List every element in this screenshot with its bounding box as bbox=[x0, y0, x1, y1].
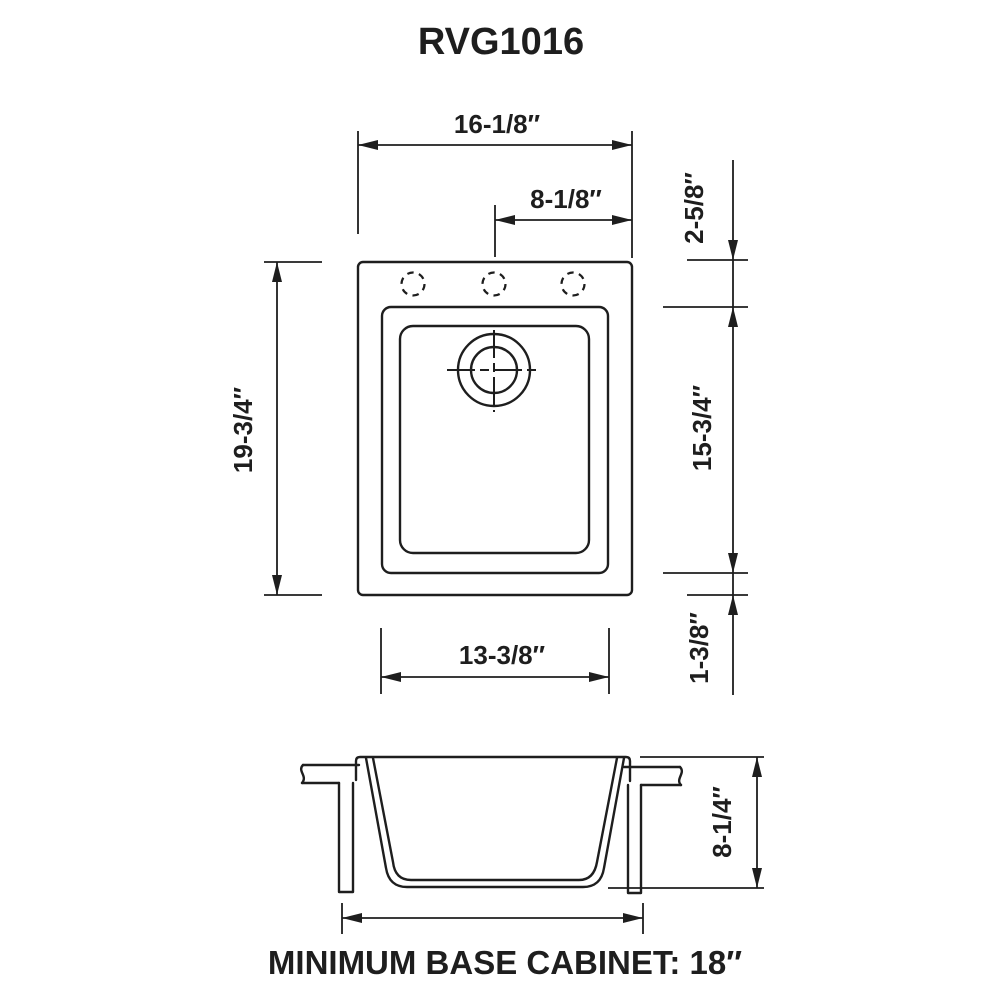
dim-center-to-edge-label: 8-1/8″ bbox=[530, 184, 602, 214]
arrow-right-icon bbox=[612, 215, 632, 225]
top-view bbox=[358, 262, 632, 595]
drawing-svg: RVG1016 16-1/8″ 8-1/8″ bbox=[0, 0, 1000, 1000]
countertop-right bbox=[624, 767, 682, 785]
bowl-wall-outer bbox=[366, 758, 624, 887]
bowl-inner-edge bbox=[400, 326, 589, 553]
bowl-wall-inner bbox=[373, 758, 617, 880]
arrow-down-icon bbox=[728, 240, 738, 260]
arrow-right-icon bbox=[623, 913, 643, 923]
dim-overall-width-label: 16-1/8″ bbox=[454, 109, 540, 139]
arrow-right-icon bbox=[612, 140, 632, 150]
dim-center-to-edge: 8-1/8″ bbox=[495, 184, 632, 257]
arrow-down-icon bbox=[728, 553, 738, 573]
dim-sink-depth: 8-1/4″ bbox=[608, 757, 764, 888]
sink-rim-profile bbox=[356, 757, 630, 781]
arrow-down-icon bbox=[752, 868, 762, 888]
faucet-hole-right-icon bbox=[562, 273, 585, 296]
dim-base-cabinet bbox=[342, 903, 643, 934]
cabinet-wall-right bbox=[628, 785, 641, 893]
dim-right-stack: 2-5/8″ 15-3/4″ 1-3/8″ bbox=[663, 160, 748, 695]
side-view bbox=[301, 757, 682, 893]
faucet-hole-center-icon bbox=[483, 273, 506, 296]
arrow-up-icon bbox=[272, 262, 282, 282]
base-cabinet-note: MINIMUM BASE CABINET: 18″ bbox=[268, 944, 742, 981]
arrow-left-icon bbox=[358, 140, 378, 150]
arrow-up-icon bbox=[728, 307, 738, 327]
dim-bowl-width-label: 13-3/8″ bbox=[459, 640, 545, 670]
dim-overall-depth-label: 19-3/4″ bbox=[228, 387, 258, 473]
dim-bowl-length-label: 15-3/4″ bbox=[687, 385, 717, 471]
break-line bbox=[679, 767, 682, 785]
dim-bowl-to-rim-label: 1-3/8″ bbox=[684, 612, 714, 684]
cabinet-wall-left bbox=[339, 783, 353, 892]
arrow-left-icon bbox=[342, 913, 362, 923]
drain bbox=[447, 330, 541, 412]
arrow-left-icon bbox=[381, 672, 401, 682]
arrow-right-icon bbox=[589, 672, 609, 682]
break-line bbox=[301, 765, 304, 783]
faucet-hole-left-icon bbox=[402, 273, 425, 296]
dim-bowl-width: 13-3/8″ bbox=[381, 628, 609, 694]
arrow-up-icon bbox=[728, 595, 738, 615]
arrow-up-icon bbox=[752, 757, 762, 777]
arrow-down-icon bbox=[272, 575, 282, 595]
arrow-left-icon bbox=[495, 215, 515, 225]
model-title: RVG1016 bbox=[418, 21, 584, 63]
countertop-left bbox=[301, 765, 359, 783]
dim-sink-depth-label: 8-1/4″ bbox=[707, 786, 737, 858]
dim-rim-to-bowl-label: 2-5/8″ bbox=[679, 172, 709, 244]
dim-overall-depth: 19-3/4″ bbox=[228, 262, 322, 595]
spec-sheet: RVG1016 16-1/8″ 8-1/8″ bbox=[0, 0, 1000, 1000]
